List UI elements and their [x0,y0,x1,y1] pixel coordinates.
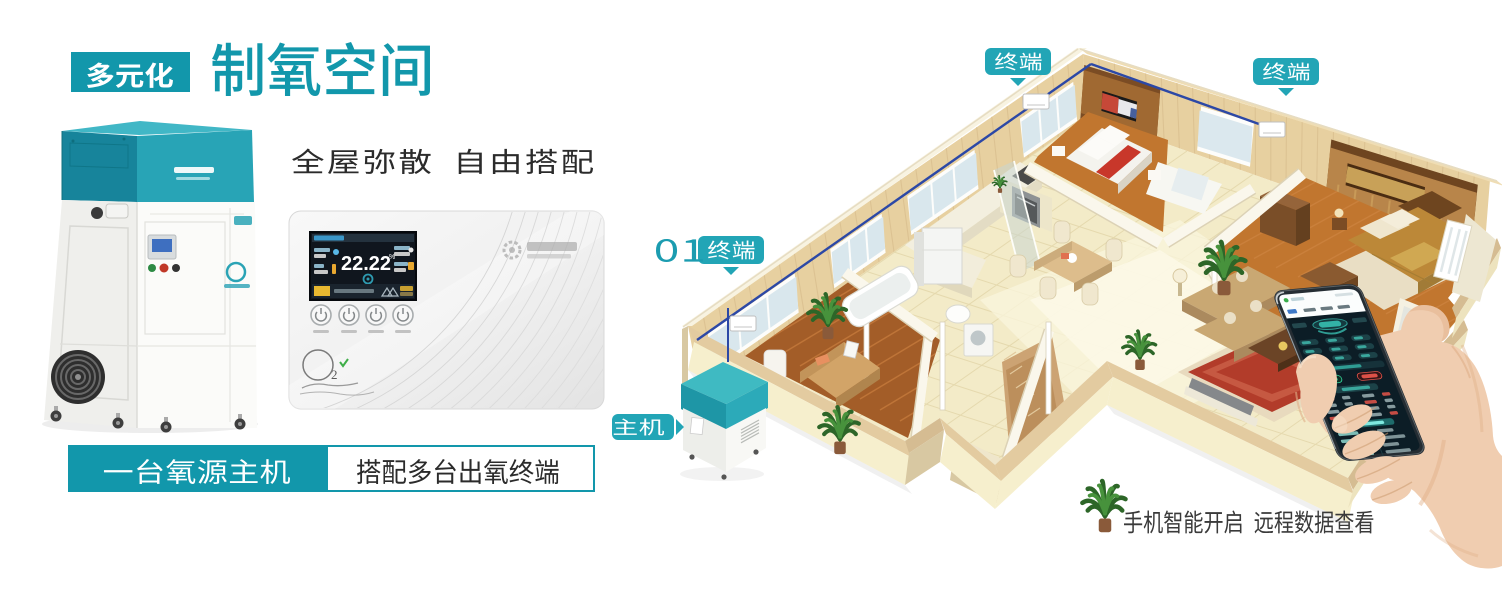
svg-text:22.22: 22.22 [341,253,391,275]
svg-text:2: 2 [331,367,338,382]
